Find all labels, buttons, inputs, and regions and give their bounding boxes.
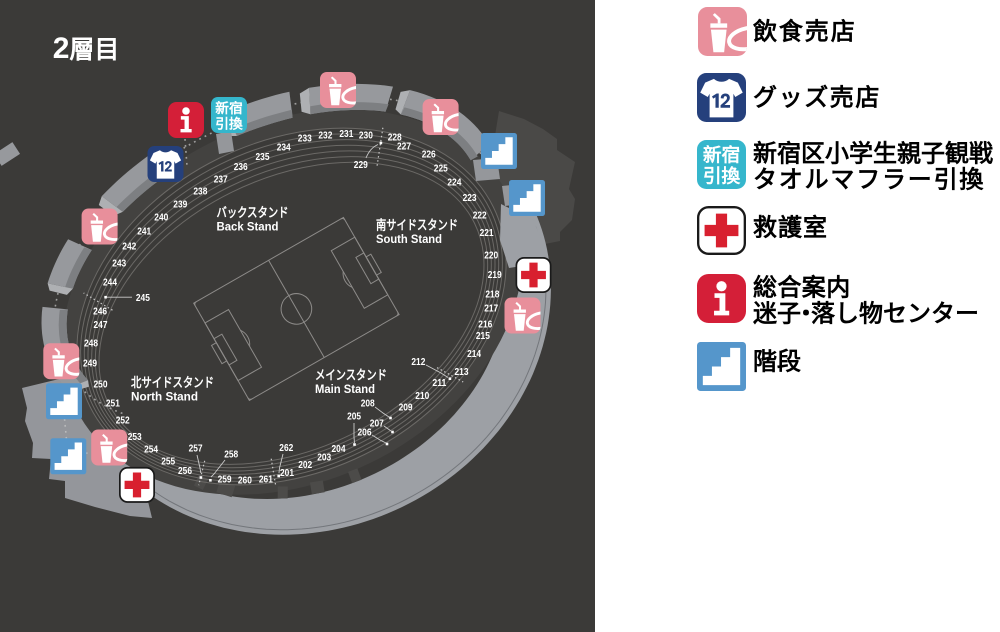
svg-text:239: 239 <box>173 199 187 211</box>
svg-text:タオルマフラー引換: タオルマフラー引換 <box>753 167 985 194</box>
svg-text:235: 235 <box>256 151 270 163</box>
svg-text:222: 222 <box>473 209 487 221</box>
svg-text:220: 220 <box>484 249 498 261</box>
svg-text:North Stand: North Stand <box>131 390 198 404</box>
svg-text:207: 207 <box>370 418 384 430</box>
svg-text:236: 236 <box>234 161 248 173</box>
svg-text:233: 233 <box>298 133 312 145</box>
svg-text:救護室: 救護室 <box>753 214 828 242</box>
svg-text:メインスタンド: メインスタンド <box>315 368 387 383</box>
svg-text:231: 231 <box>339 128 353 140</box>
svg-text:208: 208 <box>361 398 375 410</box>
svg-text:244: 244 <box>103 277 117 289</box>
svg-text:216: 216 <box>478 319 492 331</box>
svg-text:226: 226 <box>422 149 436 161</box>
svg-text:238: 238 <box>193 185 207 197</box>
svg-text:新宿区小学生親子観戦: 新宿区小学生親子観戦 <box>753 140 993 168</box>
svg-text:218: 218 <box>485 289 499 301</box>
svg-text:234: 234 <box>277 142 291 154</box>
svg-text:251: 251 <box>106 397 120 409</box>
svg-text:グッズ売店: グッズ売店 <box>753 84 881 112</box>
svg-text:243: 243 <box>112 258 126 270</box>
svg-text:Main Stand: Main Stand <box>315 382 375 396</box>
svg-text:261: 261 <box>259 473 273 485</box>
svg-text:201: 201 <box>280 467 294 479</box>
svg-text:255: 255 <box>161 456 175 468</box>
svg-text:221: 221 <box>480 227 494 239</box>
svg-text:242: 242 <box>122 241 136 253</box>
svg-text:212: 212 <box>411 356 425 368</box>
svg-text:258: 258 <box>224 448 238 460</box>
svg-text:飲食売店: 飲食売店 <box>752 18 857 46</box>
svg-text:253: 253 <box>128 431 142 443</box>
svg-text:250: 250 <box>94 379 108 391</box>
svg-text:259: 259 <box>218 473 232 485</box>
svg-text:バックスタンド: バックスタンド <box>217 205 289 220</box>
svg-text:241: 241 <box>137 226 151 238</box>
svg-text:階段: 階段 <box>753 348 801 376</box>
svg-text:230: 230 <box>359 129 373 141</box>
svg-text:209: 209 <box>399 402 413 414</box>
svg-text:205: 205 <box>347 411 361 423</box>
svg-text:247: 247 <box>94 319 108 331</box>
svg-text:246: 246 <box>93 305 107 317</box>
svg-text:2層目: 2層目 <box>53 32 120 65</box>
svg-text:南サイドスタンド: 南サイドスタンド <box>376 218 458 233</box>
svg-text:北サイドスタンド: 北サイドスタンド <box>131 375 214 390</box>
svg-text:256: 256 <box>178 465 192 477</box>
svg-text:262: 262 <box>279 442 293 454</box>
svg-text:203: 203 <box>317 452 331 464</box>
svg-text:215: 215 <box>476 330 490 342</box>
svg-text:245: 245 <box>136 292 150 304</box>
svg-text:South Stand: South Stand <box>376 232 442 246</box>
svg-text:213: 213 <box>455 366 469 378</box>
svg-text:214: 214 <box>467 348 481 360</box>
svg-text:211: 211 <box>432 377 446 389</box>
svg-text:総合案内: 総合案内 <box>753 274 851 302</box>
svg-text:Back Stand: Back Stand <box>217 220 279 234</box>
svg-text:217: 217 <box>484 303 498 315</box>
svg-text:229: 229 <box>354 159 368 171</box>
svg-text:210: 210 <box>415 390 429 402</box>
svg-text:254: 254 <box>144 444 158 456</box>
svg-text:228: 228 <box>388 131 402 143</box>
svg-text:204: 204 <box>332 443 346 455</box>
svg-text:232: 232 <box>318 129 332 141</box>
svg-text:223: 223 <box>463 192 477 204</box>
svg-text:249: 249 <box>83 358 97 370</box>
svg-text:迷子・落し物センター: 迷子・落し物センター <box>753 301 979 328</box>
svg-text:248: 248 <box>84 338 98 350</box>
svg-text:237: 237 <box>214 174 228 186</box>
svg-text:252: 252 <box>116 415 130 427</box>
svg-text:219: 219 <box>488 269 502 281</box>
svg-text:225: 225 <box>434 163 448 175</box>
svg-text:240: 240 <box>154 212 168 224</box>
svg-text:202: 202 <box>298 459 312 471</box>
svg-text:257: 257 <box>189 443 203 455</box>
svg-text:260: 260 <box>238 474 252 486</box>
svg-text:224: 224 <box>447 176 461 188</box>
